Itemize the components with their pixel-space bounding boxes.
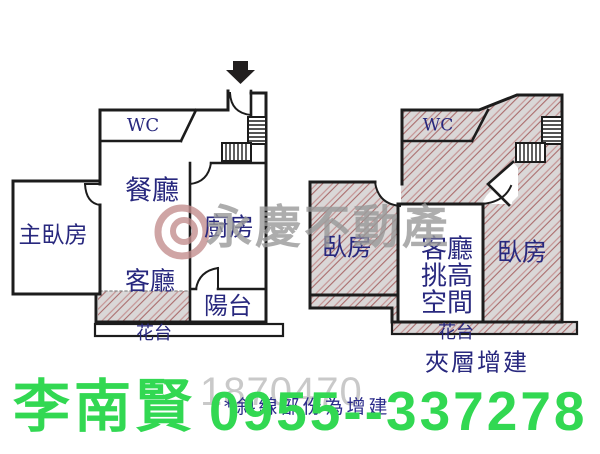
left-room-label-dining: 餐廳 bbox=[125, 178, 179, 205]
watermark-brand-text: 永慶不動產 bbox=[206, 204, 451, 250]
right-room-label-wc: WC bbox=[423, 118, 453, 135]
right-room-label-bedroom-right: 臥房 bbox=[497, 240, 547, 265]
loft-label-line-2: 挑高 bbox=[421, 264, 473, 291]
left-room-label-wc: WC bbox=[127, 117, 159, 135]
agent-phone: 0955--337278 bbox=[209, 384, 588, 439]
left-room-label-balcony: 陽台 bbox=[204, 294, 252, 318]
left-room-label-living: 客廳 bbox=[125, 269, 175, 294]
left-room-label-master-bedroom: 主臥房 bbox=[19, 225, 88, 248]
agent-name: 李南賢 bbox=[13, 379, 196, 436]
right-room-label-flower-bed: 花台 bbox=[438, 324, 474, 342]
floor-plan-flyer: WC 餐廳 廚房 主臥房 客廳 陽台 花台 WC 臥房 臥房 客廳 挑高 空間 … bbox=[0, 0, 600, 454]
left-stairs bbox=[222, 117, 266, 161]
left-room-label-flower-bed: 花台 bbox=[136, 325, 172, 343]
loft-label-line-3: 空間 bbox=[421, 291, 473, 318]
entrance-arrow-icon bbox=[226, 61, 255, 84]
left-flower-bed-strip bbox=[95, 324, 283, 336]
mezzanine-caption: 夾層增建 bbox=[425, 343, 529, 378]
left-hatched-addition bbox=[98, 291, 190, 323]
watermark-logo bbox=[158, 208, 206, 256]
right-flower-bed-strip bbox=[392, 322, 577, 334]
